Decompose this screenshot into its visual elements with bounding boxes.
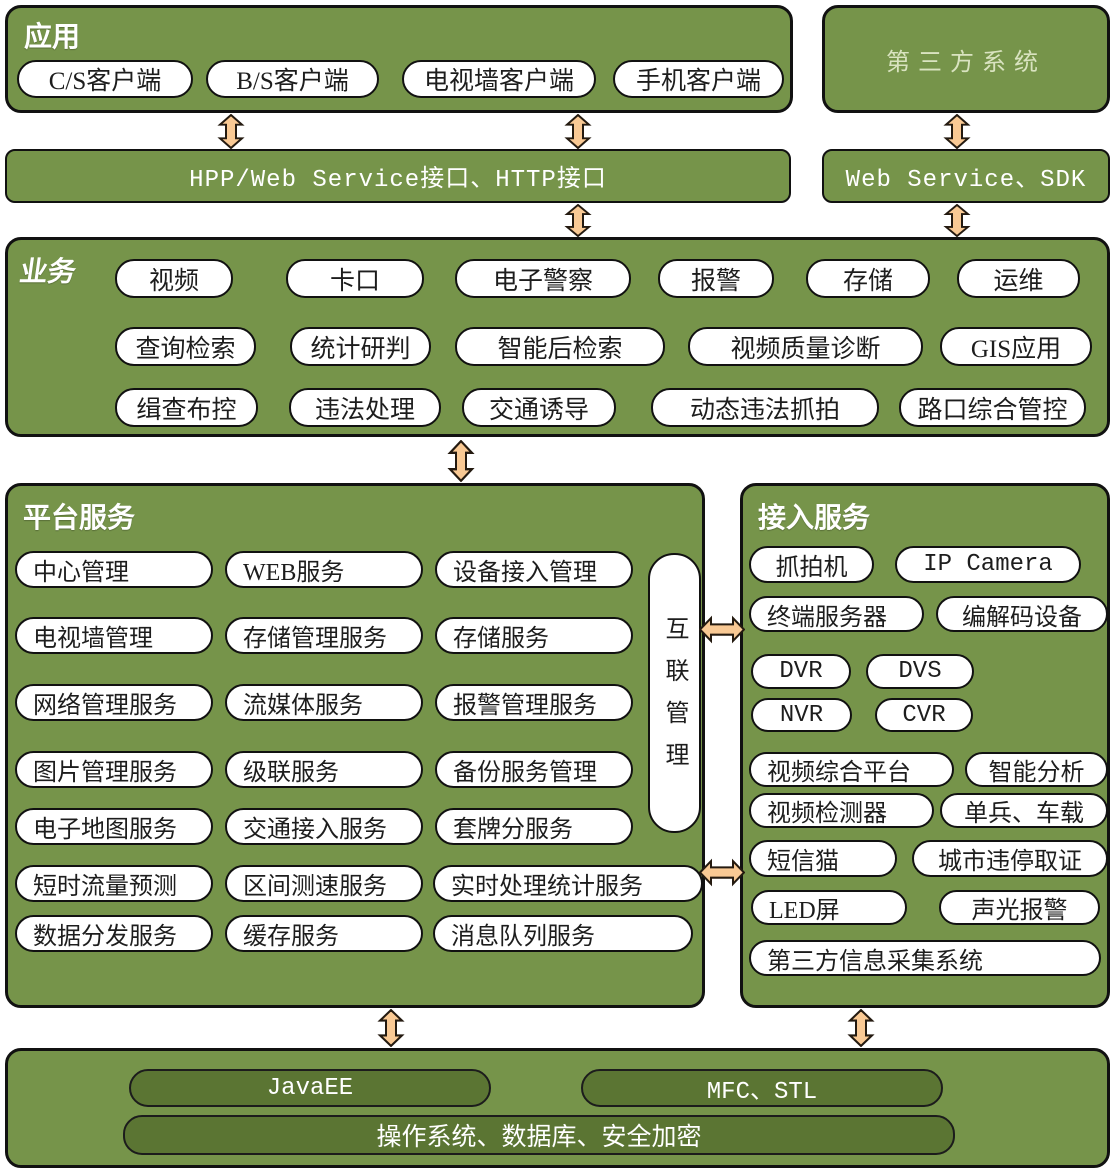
business-pill-ops: 运维 bbox=[957, 259, 1080, 298]
application-panel: 应用 C/S客户端 B/S客户端 电视墙客户端 手机客户端 bbox=[5, 5, 793, 113]
access-pill-terminal-server: 终端服务器 bbox=[749, 596, 924, 632]
access-pill-ip-camera: IP Camera bbox=[895, 546, 1081, 583]
app-pill-tvwall-client: 电视墙客户端 bbox=[402, 60, 596, 98]
platform-pill-backup-mgmt: 备份服务管理 bbox=[435, 751, 633, 788]
platform-pill-data-distribution: 数据分发服务 bbox=[15, 915, 213, 952]
business-pill-gis: GIS应用 bbox=[940, 327, 1092, 366]
foundation-mfc-stl-box: MFC、STL bbox=[581, 1069, 943, 1107]
double-arrow-vertical-icon bbox=[942, 204, 972, 237]
business-pill-video: 视频 bbox=[115, 259, 233, 298]
access-pill-led-screen: LED屏 bbox=[751, 890, 907, 925]
platform-pill-message-queue: 消息队列服务 bbox=[433, 915, 693, 952]
platform-panel-title: 平台服务 bbox=[23, 496, 135, 536]
business-panel: 业务 视频 卡口 电子警察 报警 存储 运维 查询检索 统计研判 智能后检索 视… bbox=[5, 237, 1110, 437]
double-arrow-vertical-icon bbox=[846, 1009, 876, 1047]
business-pill-stat-analysis: 统计研判 bbox=[290, 327, 431, 366]
foundation-javaee-box: JavaEE bbox=[129, 1069, 491, 1107]
double-arrow-vertical-icon bbox=[376, 1009, 406, 1047]
platform-pill-realtime-stats: 实时处理统计服务 bbox=[433, 865, 703, 902]
double-arrow-vertical-icon bbox=[446, 440, 476, 482]
access-pill-dvr: DVR bbox=[751, 654, 851, 689]
platform-pill-cache: 缓存服务 bbox=[225, 915, 423, 952]
platform-pill-device-access: 设备接入管理 bbox=[435, 551, 633, 588]
access-pill-video-detector: 视频检测器 bbox=[749, 793, 934, 828]
access-pill-codec-device: 编解码设备 bbox=[936, 596, 1108, 632]
business-pill-traffic-guidance: 交通诱导 bbox=[462, 388, 616, 427]
business-pill-smart-search: 智能后检索 bbox=[455, 327, 665, 366]
access-pill-intelligent-analysis: 智能分析 bbox=[965, 752, 1108, 787]
business-pill-alarm: 报警 bbox=[658, 259, 774, 298]
platform-pill-plate-clone: 套牌分服务 bbox=[435, 808, 633, 845]
platform-pill-storage-mgmt: 存储管理服务 bbox=[225, 617, 423, 654]
access-pill-sound-light-alarm: 声光报警 bbox=[939, 890, 1100, 925]
double-arrow-vertical-icon bbox=[563, 204, 593, 237]
business-pill-epolice: 电子警察 bbox=[455, 259, 631, 298]
business-pill-dynamic-capture: 动态违法抓拍 bbox=[651, 388, 879, 427]
double-arrow-vertical-icon bbox=[942, 114, 972, 149]
business-panel-title: 业务 bbox=[17, 250, 79, 290]
foundation-os-db-security-box: 操作系统、数据库、安全加密 bbox=[123, 1115, 955, 1155]
business-pill-storage: 存储 bbox=[806, 259, 930, 298]
access-pill-capture-camera: 抓拍机 bbox=[749, 546, 874, 583]
architecture-diagram: 应用 C/S客户端 B/S客户端 电视墙客户端 手机客户端 第三方系统 HPP/… bbox=[0, 0, 1114, 1172]
hpp-interface-bar: HPP/Web Service接口、HTTP接口 bbox=[5, 149, 791, 203]
interconnect-mgmt-box: 互联管理 bbox=[648, 553, 701, 833]
platform-pill-central-mgmt: 中心管理 bbox=[15, 551, 213, 588]
access-pill-portable-vehicle: 单兵、车载 bbox=[940, 793, 1108, 828]
app-pill-mobile-client: 手机客户端 bbox=[613, 60, 784, 98]
platform-pill-traffic-access: 交通接入服务 bbox=[225, 808, 423, 845]
platform-pill-network-mgmt: 网络管理服务 bbox=[15, 684, 213, 721]
business-pill-query-search: 查询检索 bbox=[115, 327, 256, 366]
business-pill-intersection-control: 路口综合管控 bbox=[899, 388, 1086, 427]
platform-pill-cascade: 级联服务 bbox=[225, 751, 423, 788]
platform-pill-flow-forecast: 短时流量预测 bbox=[15, 865, 213, 902]
access-pill-illegal-parking: 城市违停取证 bbox=[912, 840, 1108, 877]
access-pill-video-platform: 视频综合平台 bbox=[749, 752, 954, 787]
platform-pill-web-service: WEB服务 bbox=[225, 551, 423, 588]
application-panel-title: 应用 bbox=[24, 15, 80, 55]
app-pill-cs-client: C/S客户端 bbox=[17, 60, 193, 98]
platform-pill-streaming: 流媒体服务 bbox=[225, 684, 423, 721]
platform-pill-tvwall-mgmt: 电视墙管理 bbox=[15, 617, 213, 654]
third-party-panel: 第三方系统 bbox=[822, 5, 1110, 113]
access-panel-title: 接入服务 bbox=[758, 496, 870, 536]
business-pill-checkpoint: 卡口 bbox=[286, 259, 424, 298]
access-pill-nvr: NVR bbox=[751, 698, 852, 732]
third-party-title: 第三方系统 bbox=[825, 8, 1107, 110]
app-pill-bs-client: B/S客户端 bbox=[206, 60, 379, 98]
foundation-panel: JavaEE MFC、STL 操作系统、数据库、安全加密 bbox=[5, 1048, 1110, 1168]
business-pill-investigation: 缉查布控 bbox=[115, 388, 258, 427]
platform-pill-emap: 电子地图服务 bbox=[15, 808, 213, 845]
double-arrow-vertical-icon bbox=[216, 114, 246, 149]
business-pill-video-quality: 视频质量诊断 bbox=[688, 327, 923, 366]
platform-pill-storage-service: 存储服务 bbox=[435, 617, 633, 654]
double-arrow-vertical-icon bbox=[563, 114, 593, 149]
platform-pill-alarm-mgmt: 报警管理服务 bbox=[435, 684, 633, 721]
double-arrow-horizontal-icon bbox=[699, 856, 745, 889]
sdk-interface-bar: Web Service、SDK bbox=[822, 149, 1110, 203]
platform-pill-image-mgmt: 图片管理服务 bbox=[15, 751, 213, 788]
access-services-panel: 接入服务 抓拍机 IP Camera 终端服务器 编解码设备 DVR DVS N… bbox=[740, 483, 1110, 1008]
access-pill-cvr: CVR bbox=[875, 698, 973, 732]
access-pill-third-party-collection: 第三方信息采集系统 bbox=[749, 940, 1101, 976]
double-arrow-horizontal-icon bbox=[699, 613, 745, 646]
access-pill-dvs: DVS bbox=[866, 654, 974, 689]
access-pill-sms-modem: 短信猫 bbox=[749, 840, 897, 877]
business-pill-violation: 违法处理 bbox=[289, 388, 441, 427]
platform-services-panel: 平台服务 中心管理 WEB服务 设备接入管理 电视墙管理 存储管理服务 存储服务… bbox=[5, 483, 705, 1008]
platform-pill-section-speed: 区间测速服务 bbox=[225, 865, 423, 902]
